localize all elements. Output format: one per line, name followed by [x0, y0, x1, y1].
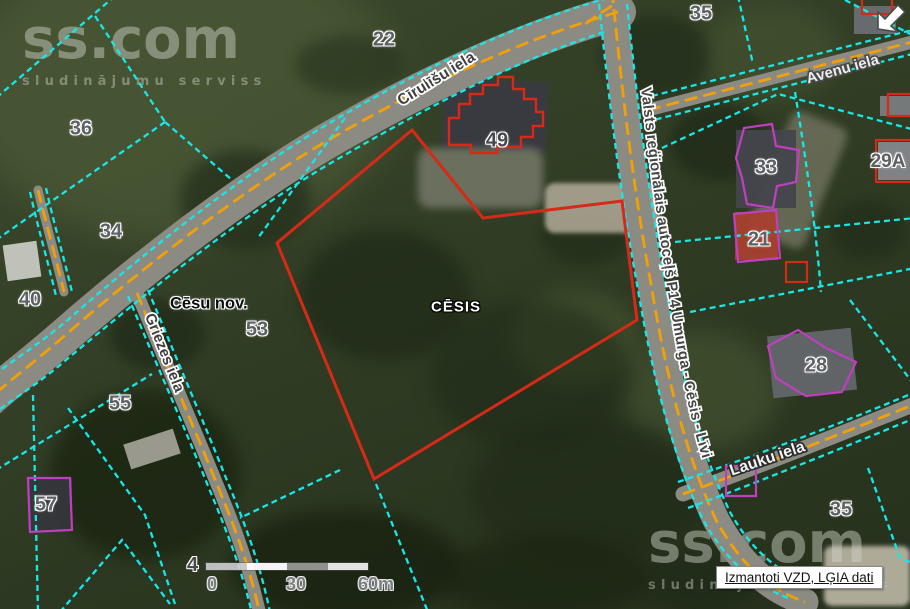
cadastral-overlay: Cīrulīšu iela Valsts reģionālais autoceļ…	[0, 0, 910, 609]
building-outline-red	[876, 140, 910, 182]
scale-bar-segment	[206, 563, 247, 570]
map-canvas[interactable]: ss.com sludinājumu serviss ss.com sludin…	[0, 0, 910, 609]
road-surfaces	[0, 0, 910, 609]
road-cirulisu	[0, 12, 618, 400]
street-labels: Cīrulīšu iela Valsts reģionālais autoceļ…	[141, 48, 881, 479]
building-outline-red	[786, 262, 807, 282]
scale-bar	[206, 563, 368, 570]
scale-bar-segment	[247, 563, 288, 570]
scale-bar-segment	[328, 563, 369, 570]
attribution-link[interactable]: Izmantoti VZD, LĢIA dati	[716, 566, 883, 589]
scale-bar-segment	[287, 563, 328, 570]
selected-parcel-outline[interactable]	[277, 130, 637, 479]
building-outline-red	[888, 94, 910, 116]
